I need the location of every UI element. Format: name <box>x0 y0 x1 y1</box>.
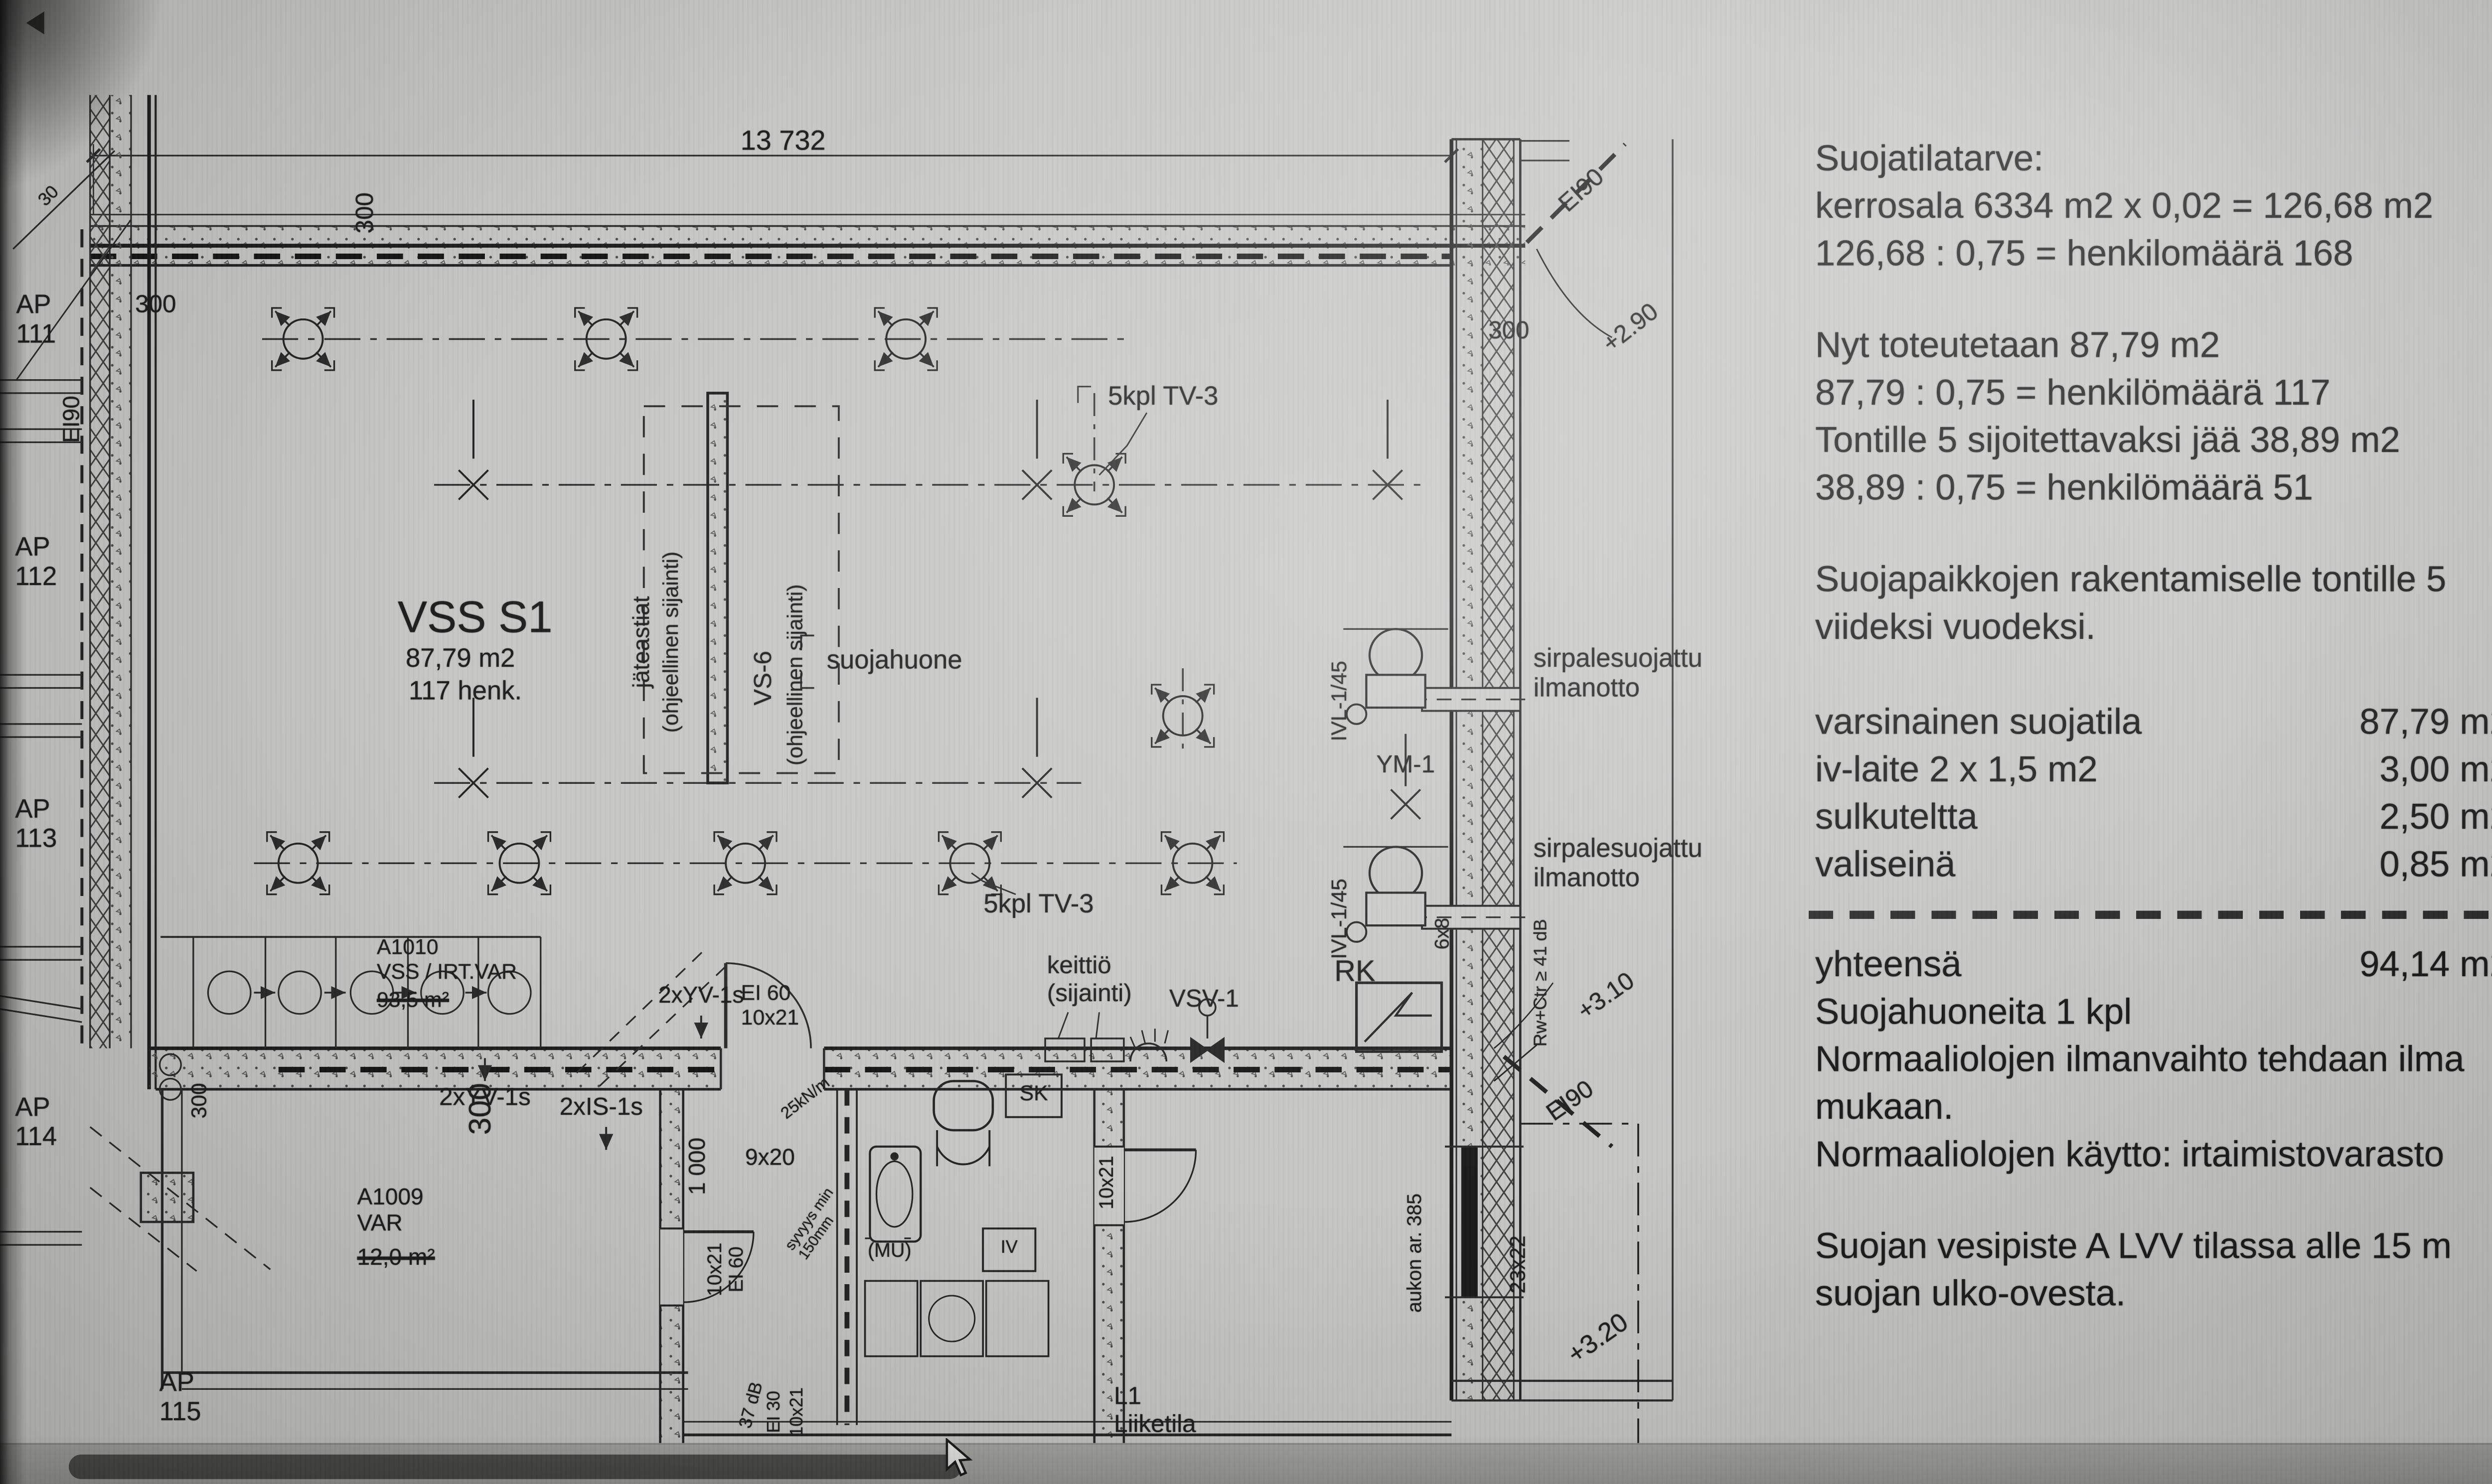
annotation-line-16: Normaaliolojen ilmanvaihto tehdaan ilma <box>1815 1039 2492 1081</box>
plan-label-ym1: YM-1 <box>1376 753 1435 780</box>
plan-label-door-10x21-corridor: 10x21 <box>705 1243 727 1296</box>
cross-marks <box>459 400 1402 798</box>
annotation-line-1: kerrosala 6334 m2 x 0,02 = 126,68 m2 <box>1815 185 2492 227</box>
window-23x22 <box>1461 1147 1478 1297</box>
scroll-left-icon[interactable] <box>26 11 44 34</box>
annotation-row-label: sulkuteltta <box>1815 796 1978 838</box>
plan-label-mu: (MU) <box>868 1240 912 1262</box>
plan-label-dim-9x20: 9x20 <box>745 1145 795 1171</box>
plan-label-tv3-top: 5kpl TV-3 <box>1108 383 1218 413</box>
annotation-line-18: Normaaliolojen käytto: irtaimistovarasto <box>1815 1134 2492 1176</box>
plan-label-room-ap111: AP 111 <box>16 292 56 350</box>
annotation-row-value: 0,85 m2 <box>2379 844 2492 886</box>
plan-label-dim-6x8: 6x8 <box>1432 918 1454 950</box>
plan-label-room-ap113: AP 113 <box>15 796 57 855</box>
plan-label-dim-300-bl-big: 300 <box>464 1083 499 1135</box>
annotation-dashed-separator <box>1809 911 2492 919</box>
annotation-line-2: 126,68 : 0,75 = henkilomäärä 168 <box>1815 233 2492 275</box>
screen-photo: 13 732300AP 111300EI90AP 112AP 113AP 114… <box>0 0 2492 1484</box>
plan-label-rk: RK <box>1334 955 1375 988</box>
annotation-row-label: iv-laite 2 x 1,5 m2 <box>1815 748 2098 791</box>
annotation-row-value: 94,14 m2 <box>2359 943 2492 986</box>
mouse-cursor-icon <box>943 1438 983 1481</box>
horizontal-scrollbar-track[interactable] <box>0 1443 2492 1484</box>
plan-label-aukon-ar: aukon ar. 385 <box>1404 1193 1426 1313</box>
plan-label-vs6: VS-6 <box>751 651 779 706</box>
annotation-row-9: varsinainen suojatila87,79 m2 <box>1815 701 2492 743</box>
annotation-line-19: Suojan vesipiste A LVV tilassa alle 15 m <box>1815 1225 2492 1268</box>
plan-label-room-ap115: AP 115 <box>159 1369 201 1428</box>
annotation-row-label: yhteensä <box>1815 943 1962 986</box>
annotation-line-7: Suojapaikkojen rakentamiselle tontille 5 <box>1815 559 2492 601</box>
annotation-row-12: valiseinä0,85 m2 <box>1815 844 2492 886</box>
wall-top <box>90 215 1525 266</box>
plan-label-door-ei60-10x21: EI 60 10x21 <box>741 982 799 1030</box>
annotation-row-14: yhteensä94,14 m2 <box>1815 943 2492 986</box>
annotation-row-label: valiseinä <box>1815 844 1955 886</box>
plan-label-room-vss-s1: VSS S1 <box>398 593 553 642</box>
annotation-row-value: 2,50 m2 <box>2379 796 2492 838</box>
annotation-row-10: iv-laite 2 x 1,5 m23,00 m2 <box>1815 748 2492 791</box>
plan-label-vs6-sijainti: (ohjeellinen sijainti) <box>784 585 808 765</box>
annotation-line-17: mukaan. <box>1815 1086 2492 1128</box>
plan-label-dim-300-right: 300 <box>1488 319 1529 346</box>
plan-label-vss-area: 87,79 m2 <box>406 645 515 675</box>
plan-label-d10x21-b: 10x21 <box>788 1387 808 1437</box>
plan-label-valve-2xyv1s-b: 2xYV-1s <box>658 983 744 1009</box>
plan-label-a1009-area: 12,0 m² <box>357 1245 435 1271</box>
plan-label-room-ap112: AP 112 <box>15 534 57 593</box>
plan-label-dim-300-left: 300 <box>135 293 176 320</box>
plan-label-room-ap114: AP 114 <box>15 1094 57 1153</box>
rk-cabinet <box>1357 983 1442 1051</box>
plan-label-valve-2xis1s: 2xIS-1s <box>560 1095 643 1123</box>
plan-label-dim-300-topwall: 300 <box>353 192 381 233</box>
plan-label-ivl-145-a: IVL-1/45 <box>1328 661 1352 742</box>
plan-label-tv3-bottom: 5kpl TV-3 <box>983 891 1093 920</box>
horizontal-scrollbar-thumb[interactable] <box>69 1455 961 1479</box>
annotation-line-20: suojan ulko-ovesta. <box>1815 1273 2492 1315</box>
lower-left-structure <box>90 1089 688 1389</box>
annotation-row-label: varsinainen suojatila <box>1815 701 2142 743</box>
plan-label-jateastiat: jäteastiat <box>629 596 655 688</box>
plan-label-dim-13732: 13 732 <box>741 125 826 156</box>
plan-label-fire-ei90-left: EI90 <box>59 396 85 443</box>
plan-label-sirpale-b: sirpalesuojattu ilmanotto <box>1534 836 1703 894</box>
annotation-row-11: sulkuteltta2,50 m2 <box>1815 796 2492 838</box>
plan-label-sirpale-a: sirpalesuojattu ilmanotto <box>1534 645 1703 704</box>
plan-label-ivl-145-b: IVL-1/45 <box>1328 879 1352 959</box>
annotation-line-0: Suojatilatarve: <box>1815 138 2492 180</box>
annotation-line-15: Suojahuoneita 1 kpl <box>1815 991 2492 1034</box>
plan-label-door-10x21-right: 10x21 <box>1096 1156 1118 1209</box>
plan-label-room-a1010: A1010 VSS / IRT.VAR <box>377 936 517 984</box>
plan-label-sk: SK <box>1020 1082 1048 1106</box>
wall-shelter-bottom <box>149 1048 1451 1089</box>
annotation-line-6: 38,89 : 0,75 = henkilömäärä 51 <box>1815 467 2492 509</box>
plan-label-vsv1: VSV-1 <box>1169 987 1239 1015</box>
plan-label-iv: IV <box>1001 1238 1018 1258</box>
fixtures <box>865 1074 1062 1356</box>
plan-label-vss-persons: 117 henk. <box>409 678 522 708</box>
sink <box>870 1147 921 1242</box>
plan-label-jateastiat-sijainti: (ohjeellinen sijainti) <box>660 552 684 733</box>
annotation-line-8: viideksi vuodeksi. <box>1815 606 2492 648</box>
annotation-row-value: 3,00 m2 <box>2379 748 2492 791</box>
plan-label-room-a1009: A1009 VAR <box>357 1185 424 1236</box>
plan-label-rw-ctr: Rw+Ctr ≥ 41 dB <box>1532 919 1552 1046</box>
annotation-line-4: 87,79 : 0,75 = henkilömäärä 117 <box>1815 372 2492 414</box>
chair <box>934 1081 993 1166</box>
plan-label-room-l1: L1 Liiketila <box>1114 1384 1196 1439</box>
plan-label-dim-1000: 1 000 <box>685 1138 711 1195</box>
plan-label-door-ei60-corridor: EI 60 <box>726 1246 748 1292</box>
annotation-line-5: Tontille 5 sijoitettavaksi jää 38,89 m2 <box>1815 419 2492 461</box>
plan-label-suojahuone: suojahuone <box>827 647 962 677</box>
plan-label-keittio: keittiö (sijainti) <box>1047 954 1132 1009</box>
annotation-row-value: 87,79 m2 <box>2359 701 2492 743</box>
plan-label-a1010-area: 93,5 m² <box>377 989 449 1013</box>
annotation-line-3: Nyt toteutetaan 87,79 m2 <box>1815 324 2492 367</box>
plan-label-ei30: EI 30 <box>765 1391 785 1433</box>
plan-label-dim-300-bl-small: 300 <box>188 1083 212 1118</box>
plan-label-dim-23x22: 23x22 <box>1507 1235 1531 1293</box>
